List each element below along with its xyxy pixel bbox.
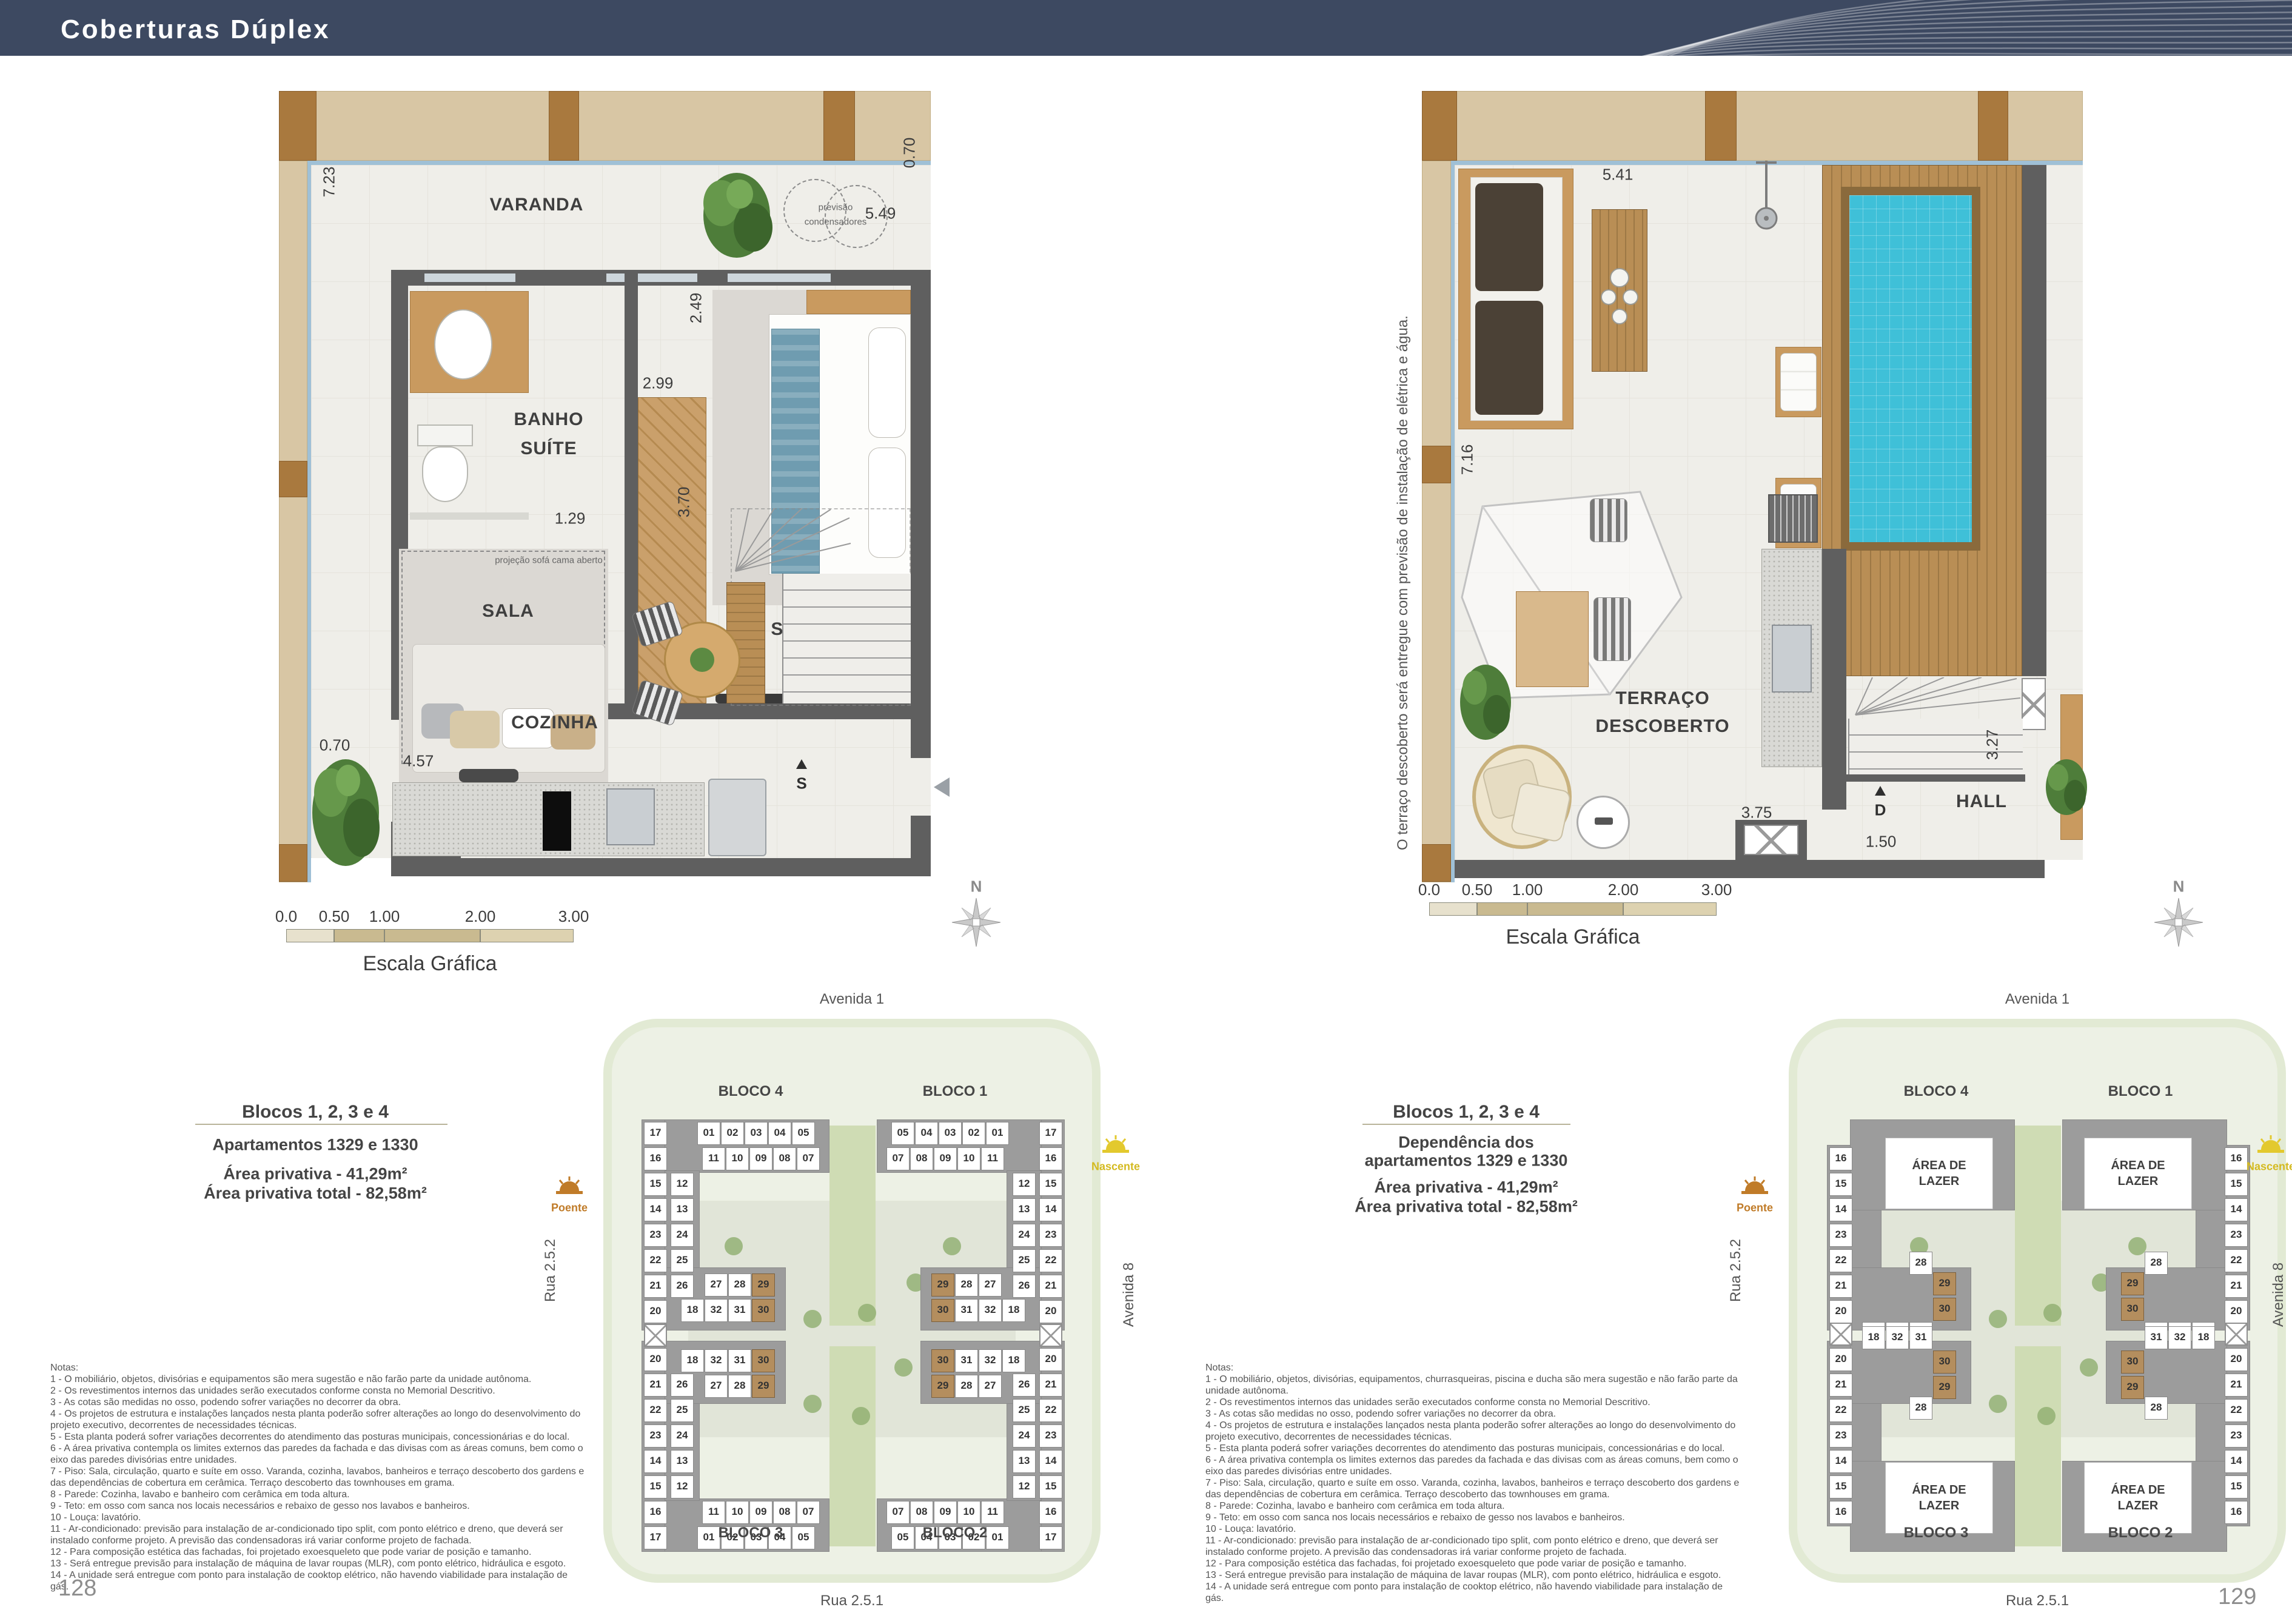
fridge <box>708 779 766 856</box>
scale-tick-label: 1.00 <box>369 907 400 926</box>
info-title: Blocos 1, 2, 3 e 4 <box>1393 1102 1540 1122</box>
unit-09: 09 <box>749 1501 772 1524</box>
unit-22: 22 <box>1039 1249 1062 1272</box>
range-hood <box>459 769 518 782</box>
unit-22: 22 <box>644 1249 667 1272</box>
unit-23: 23 <box>1039 1224 1062 1247</box>
sun-nascente-label: Nascente <box>2247 1161 2292 1173</box>
note-line: 2 - Os revestimentos internos das unidad… <box>1205 1397 1742 1408</box>
room-label-hall: HALL <box>1956 791 2007 812</box>
note-line: 11 - Ar-condicionado: previsão para inst… <box>50 1523 587 1546</box>
bloco1-label: BLOCO 1 <box>923 1083 988 1100</box>
towel <box>1780 353 1817 411</box>
lazer-line: LAZER <box>1886 1498 1992 1514</box>
unit-28: 28 <box>1909 1252 1932 1275</box>
unit-03: 03 <box>939 1122 962 1145</box>
unit-31: 31 <box>728 1349 751 1372</box>
note-line: 14 - A unidade será entregue com ponto p… <box>1205 1581 1742 1604</box>
chair <box>1590 498 1627 542</box>
unit-30: 30 <box>752 1349 775 1372</box>
unit-20: 20 <box>1829 1300 1852 1323</box>
plant-icon <box>2042 757 2091 817</box>
unit-21: 21 <box>2225 1275 2248 1298</box>
lazer-line: ÁREA DE <box>2085 1158 2191 1173</box>
grill <box>1768 494 1818 543</box>
toilet-tank <box>417 424 473 446</box>
unit-09: 09 <box>934 1147 957 1170</box>
bath-sink <box>434 309 492 380</box>
frame-post <box>1978 91 2008 161</box>
unit-21: 21 <box>1829 1275 1852 1298</box>
scale-tick-label: 2.00 <box>465 907 496 926</box>
unit-30: 30 <box>1933 1351 1956 1374</box>
unit-32: 32 <box>979 1349 1002 1372</box>
unit-04: 04 <box>768 1122 791 1145</box>
unit-28: 28 <box>2145 1397 2168 1420</box>
lazer-line: ÁREA DE <box>1886 1482 1992 1498</box>
condenser-label: previsão <box>819 203 853 213</box>
unit-05: 05 <box>792 1122 815 1145</box>
pillow-beige <box>450 711 500 748</box>
unit-15: 15 <box>2225 1173 2248 1196</box>
unit-08: 08 <box>773 1147 796 1170</box>
wall <box>391 858 931 876</box>
area-de-lazer-label: ÁREA DELAZER <box>2084 1138 2192 1209</box>
unit-27: 27 <box>979 1375 1002 1398</box>
scale-title: Escala Gráfica <box>1506 925 1640 949</box>
exoskeleton-left <box>279 161 307 882</box>
room-label-cozinha: COZINHA <box>511 713 598 733</box>
unit-01: 01 <box>986 1526 1009 1549</box>
dim-0-70b: 0.70 <box>320 736 350 755</box>
unit-07: 07 <box>797 1147 820 1170</box>
dim-3-75: 3.75 <box>1741 804 1772 822</box>
street-rua251: Rua 2.5.1 <box>2006 1592 2069 1609</box>
unit-32: 32 <box>1886 1326 1909 1349</box>
shaft-box <box>2022 678 2046 730</box>
unit-24: 24 <box>1013 1424 1036 1448</box>
unit-31: 31 <box>955 1299 978 1322</box>
unit-27: 27 <box>979 1273 1002 1297</box>
frame-post <box>279 91 317 161</box>
unit-29: 29 <box>2121 1272 2144 1295</box>
unit-08: 08 <box>910 1501 933 1524</box>
unit-17: 17 <box>644 1122 667 1145</box>
unit-31: 31 <box>2145 1326 2168 1349</box>
cushion <box>1510 781 1572 843</box>
building-quadrant: 1716151423222120121324252601020304051110… <box>644 1122 857 1328</box>
unit-26: 26 <box>671 1374 694 1397</box>
wall <box>1455 860 2045 878</box>
unit-14: 14 <box>1039 1198 1062 1221</box>
toilet-icon <box>422 446 468 502</box>
lazer-line: LAZER <box>2085 1173 2191 1189</box>
note-line: 5 - Esta planta poderá sofrer variações … <box>1205 1443 1742 1454</box>
info-divider <box>195 1124 447 1125</box>
note-line: 3 - As cotas são medidas no osso, podend… <box>1205 1408 1742 1420</box>
unit-08: 08 <box>773 1501 796 1524</box>
condenser-label: condensadores <box>805 217 867 227</box>
dim-5-49: 5.49 <box>865 204 896 223</box>
terrace-side-note: O terraço descoberto será entregue com p… <box>1395 315 1412 850</box>
unit-11: 11 <box>702 1501 725 1524</box>
building-quadrant: 16151423222120ÁREA DELAZER282930183231 <box>1829 1122 2043 1328</box>
notes-title: Notas: <box>1205 1362 1742 1374</box>
shelf <box>806 290 911 314</box>
unit-18: 18 <box>1002 1299 1025 1322</box>
unit-01: 01 <box>697 1122 720 1145</box>
unit-20: 20 <box>1039 1348 1062 1371</box>
stair-fan-icon <box>1848 677 2023 719</box>
unit-09: 09 <box>934 1501 957 1524</box>
info-area2: Área privativa total - 82,58m² <box>1355 1198 1578 1216</box>
unit-18: 18 <box>1862 1326 1885 1349</box>
unit-14: 14 <box>1829 1198 1852 1221</box>
note-line: 7 - Piso: Sala, circulação, quarto e suí… <box>50 1466 587 1489</box>
unit-05: 05 <box>792 1526 815 1549</box>
compass-icon <box>2153 896 2205 948</box>
unit-11: 11 <box>702 1147 725 1170</box>
unit-29: 29 <box>931 1375 954 1398</box>
frame-post <box>1705 91 1737 161</box>
unit-04: 04 <box>915 1122 938 1145</box>
unit-02: 02 <box>721 1122 744 1145</box>
brochure-page: Coberturas Dúplex VARANDA <box>0 0 2292 1624</box>
unit-21: 21 <box>2225 1374 2248 1397</box>
bath-divider <box>410 512 529 520</box>
unit-23: 23 <box>1039 1424 1062 1448</box>
frame-post <box>279 461 307 497</box>
notes-right: Notas: 1 - O mobiliário, objetos, divisó… <box>1205 1362 1742 1604</box>
shower-icon <box>1751 158 1781 233</box>
unit-15: 15 <box>1829 1475 1852 1498</box>
unit-01: 01 <box>986 1122 1009 1145</box>
unit-29: 29 <box>1933 1376 1956 1399</box>
sun-nascente-icon <box>1101 1134 1130 1155</box>
lazer-line: LAZER <box>1886 1173 1992 1189</box>
building-quadrant: 16151423222120ÁREA DELAZER282930183231 <box>2034 1122 2248 1328</box>
unit-23: 23 <box>644 1224 667 1247</box>
unit-12: 12 <box>1013 1475 1036 1498</box>
unit-26: 26 <box>1013 1275 1036 1298</box>
window <box>424 273 515 282</box>
unit-22: 22 <box>644 1399 667 1422</box>
unit-13: 13 <box>671 1198 694 1221</box>
unit-11: 11 <box>981 1501 1004 1524</box>
page-number-128: 128 <box>58 1575 96 1602</box>
unit-22: 22 <box>2225 1249 2248 1272</box>
note-line: 1 - O mobiliário, objetos, divisórias, e… <box>1205 1374 1742 1397</box>
scale-segment <box>334 929 384 942</box>
unit-08: 08 <box>910 1147 933 1170</box>
unit-14: 14 <box>1039 1450 1062 1473</box>
scale-tick-label: 1.00 <box>1512 881 1543 899</box>
unit-29: 29 <box>752 1273 775 1297</box>
unit-16: 16 <box>2225 1147 2248 1170</box>
bloco3-label: BLOCO 3 <box>1904 1525 1969 1542</box>
sun-nascente-icon <box>2256 1134 2285 1155</box>
dim-3-27: 3.27 <box>1983 730 2002 760</box>
frame-post <box>1422 844 1451 882</box>
scale-tick-label: 3.00 <box>558 907 589 926</box>
unit-30: 30 <box>752 1299 775 1322</box>
chair <box>1593 597 1631 661</box>
unit-30: 30 <box>931 1299 954 1322</box>
area-de-lazer-label: ÁREA DELAZER <box>1885 1138 1993 1209</box>
room-label-varanda: VARANDA <box>490 195 584 215</box>
unit-05: 05 <box>891 1526 914 1549</box>
dim-1-50: 1.50 <box>1866 833 1897 851</box>
scale-segment <box>384 929 480 942</box>
unit-07: 07 <box>797 1501 820 1524</box>
unit-30: 30 <box>2121 1298 2144 1321</box>
stair-fan-icon <box>731 508 852 574</box>
exoskeleton-left <box>1422 161 1451 882</box>
scale-segment <box>1527 902 1623 916</box>
unit-10: 10 <box>957 1501 980 1524</box>
unit-25: 25 <box>671 1249 694 1272</box>
note-line: 8 - Parede: Cozinha, lavabo e banheiro c… <box>1205 1500 1742 1512</box>
unit-16: 16 <box>644 1501 667 1524</box>
unit-12: 12 <box>671 1173 694 1196</box>
scale-tick-label: 0.0 <box>1418 881 1440 899</box>
unit-31: 31 <box>955 1349 978 1372</box>
unit-18: 18 <box>681 1349 704 1372</box>
compass-icon <box>950 896 1002 948</box>
dim-7-16: 7.16 <box>1458 445 1477 475</box>
unit-10: 10 <box>957 1147 980 1170</box>
scale-segment <box>480 929 574 942</box>
dim-2-49: 2.49 <box>687 293 706 324</box>
unit-13: 13 <box>671 1450 694 1473</box>
stair-treads <box>782 574 911 703</box>
unit-32: 32 <box>979 1299 1002 1322</box>
lazer-line: ÁREA DE <box>2085 1482 2191 1498</box>
bloco4-label: BLOCO 4 <box>1904 1083 1969 1100</box>
dim-3-70: 3.70 <box>675 487 694 518</box>
unit-17: 17 <box>1039 1122 1062 1145</box>
unit-15: 15 <box>644 1475 667 1498</box>
scale-tick-label: 3.00 <box>1701 881 1732 899</box>
unit-32: 32 <box>2168 1326 2191 1349</box>
unit-17: 17 <box>644 1526 667 1549</box>
scale-title: Escala Gráfica <box>363 952 497 976</box>
street-avenida8: Avenida 8 <box>2270 1263 2287 1327</box>
scale-tick-label: 2.00 <box>1608 881 1639 899</box>
stair-tower-icon <box>1039 1324 1062 1347</box>
unit-22: 22 <box>1829 1399 1852 1422</box>
plant-icon <box>697 167 779 267</box>
stair-tower-icon <box>2225 1323 2248 1346</box>
note-line: 1 - O mobiliário, objetos, divisórias e … <box>50 1374 587 1385</box>
frame-post <box>1422 91 1457 161</box>
unit-03: 03 <box>745 1122 768 1145</box>
plant-icon <box>308 755 387 870</box>
unit-32: 32 <box>705 1299 728 1322</box>
scale-segment <box>1477 902 1527 916</box>
dim-1-29: 1.29 <box>555 509 586 528</box>
unit-20: 20 <box>2225 1300 2248 1323</box>
room-label-banho2: SUÍTE <box>520 438 577 459</box>
room-label-banho: BANHO <box>514 409 584 430</box>
header-wave-decoration-icon <box>0 0 2292 56</box>
pillow <box>868 327 906 438</box>
unit-18: 18 <box>1002 1349 1025 1372</box>
dim-5-41: 5.41 <box>1603 166 1634 184</box>
plates-icon <box>1592 261 1647 334</box>
unit-16: 16 <box>2225 1501 2248 1524</box>
dim-0-70: 0.70 <box>900 138 919 169</box>
unit-23: 23 <box>1829 1424 1852 1448</box>
unit-31: 31 <box>1909 1326 1932 1349</box>
unit-01: 01 <box>697 1526 720 1549</box>
scale-segment <box>1429 902 1477 916</box>
sun-poente-label: Poente <box>1737 1202 1773 1215</box>
unit-10: 10 <box>726 1501 749 1524</box>
unit-24: 24 <box>671 1224 694 1247</box>
unit-18: 18 <box>681 1299 704 1322</box>
unit-07: 07 <box>886 1501 910 1524</box>
side-table-item <box>1595 817 1613 825</box>
unit-10: 10 <box>726 1147 749 1170</box>
note-line: 5 - Esta planta poderá sofrer variações … <box>50 1431 587 1443</box>
table-plant-icon <box>690 648 714 672</box>
info-area2: Área privativa total - 82,58m² <box>204 1184 427 1203</box>
sun-poente-label: Poente <box>551 1202 588 1215</box>
unit-20: 20 <box>1039 1300 1062 1323</box>
unit-21: 21 <box>1039 1374 1062 1397</box>
unit-25: 25 <box>1013 1399 1036 1422</box>
unit-21: 21 <box>1039 1275 1062 1298</box>
unit-21: 21 <box>1829 1374 1852 1397</box>
unit-28: 28 <box>728 1375 751 1398</box>
unit-32: 32 <box>705 1349 728 1372</box>
unit-30: 30 <box>2121 1351 2144 1374</box>
glass-railing <box>307 161 931 165</box>
unit-25: 25 <box>1013 1249 1036 1272</box>
notes-title: Notas: <box>50 1362 587 1374</box>
unit-15: 15 <box>644 1173 667 1196</box>
unit-20: 20 <box>2225 1348 2248 1371</box>
entry-arrow-icon <box>934 777 950 797</box>
unit-26: 26 <box>671 1275 694 1298</box>
info-area1: Área privativa - 41,29m² <box>223 1165 407 1184</box>
unit-29: 29 <box>1933 1272 1956 1295</box>
frame-post <box>279 844 307 882</box>
bloco4-label: BLOCO 4 <box>719 1083 783 1100</box>
wall <box>1846 774 2025 782</box>
unit-09: 09 <box>749 1147 772 1170</box>
page-title: Coberturas Dúplex <box>61 15 330 45</box>
stair-tower-icon <box>1829 1323 1852 1346</box>
window <box>606 273 697 282</box>
stair-letter: S <box>796 774 806 793</box>
info-divider <box>1362 1124 1570 1125</box>
unit-23: 23 <box>2225 1224 2248 1247</box>
street-rua252: Rua 2.5.2 <box>542 1239 559 1302</box>
unit-15: 15 <box>2225 1475 2248 1498</box>
note-line: 10 - Louça: lavatório. <box>50 1512 587 1523</box>
unit-28: 28 <box>728 1273 751 1297</box>
scale-tick-label: 0.0 <box>275 907 297 926</box>
frame-post <box>549 91 579 161</box>
street-avenida8: Avenida 8 <box>1121 1263 1138 1327</box>
unit-24: 24 <box>1013 1224 1036 1247</box>
room-label-terraco2: DESCOBERTO <box>1595 716 1729 737</box>
info-subtitle2: apartamentos 1329 e 1330 <box>1365 1152 1568 1170</box>
sofa-cushion <box>1475 301 1543 415</box>
note-line: 9 - Teto: em osso com sanca nos locais n… <box>1205 1512 1742 1523</box>
cooktop <box>543 791 571 851</box>
lazer-line: ÁREA DE <box>1886 1158 1992 1173</box>
unit-28: 28 <box>2145 1252 2168 1275</box>
unit-13: 13 <box>1013 1198 1036 1221</box>
street-avenida1: Avenida 1 <box>820 991 884 1008</box>
terrace-sink <box>1772 625 1812 693</box>
wall <box>1822 549 1846 810</box>
bloco3-label: BLOCO 3 <box>719 1525 783 1542</box>
dining-table-sketch <box>1516 591 1589 687</box>
unit-14: 14 <box>2225 1450 2248 1473</box>
unit-28: 28 <box>955 1273 978 1297</box>
unit-15: 15 <box>1039 1475 1062 1498</box>
unit-29: 29 <box>931 1273 954 1297</box>
balcony-door <box>728 273 831 282</box>
note-line: 13 - Será entregue previsão para instala… <box>1205 1569 1742 1581</box>
note-line: 4 - Os projetos de estrutura e instalaçõ… <box>1205 1420 1742 1443</box>
stair-letter: D <box>1875 801 1886 820</box>
note-line: 6 - A área privativa contempla os limite… <box>1205 1454 1742 1477</box>
building-quadrant: 1716151423222120121324252601020304051110… <box>849 1122 1062 1328</box>
unit-24: 24 <box>671 1424 694 1448</box>
scale-segment <box>286 929 334 942</box>
area-de-lazer-label: ÁREA DELAZER <box>2084 1462 2192 1534</box>
frame-post <box>1422 446 1451 483</box>
unit-25: 25 <box>671 1399 694 1422</box>
area-de-lazer-label: ÁREA DELAZER <box>1885 1462 1993 1534</box>
unit-16: 16 <box>1829 1501 1852 1524</box>
room-label-sala: SALA <box>482 601 534 622</box>
wall <box>625 270 638 719</box>
scale-tick-label: 0.50 <box>1462 881 1493 899</box>
note-line: 13 - Será entregue previsão para instala… <box>50 1558 587 1569</box>
projection-label: projeção sofá cama aberto <box>495 555 603 566</box>
stair-direction-icon <box>1875 786 1886 796</box>
unit-14: 14 <box>644 1450 667 1473</box>
note-line: 12 - Para composição estética das fachad… <box>1205 1558 1742 1569</box>
unit-16: 16 <box>1039 1501 1062 1524</box>
unit-21: 21 <box>644 1275 667 1298</box>
compass-north-label: N <box>971 877 982 896</box>
stair-direction-icon <box>796 759 807 769</box>
sun-poente-icon <box>1740 1175 1769 1196</box>
note-line: 12 - Para composição estética das fachad… <box>50 1546 587 1558</box>
sofa-cushion <box>1475 183 1543 291</box>
header-bar: Coberturas Dúplex <box>0 0 2292 56</box>
sun-nascente-label: Nascente <box>1091 1161 1140 1173</box>
note-line: 2 - Os revestimentos internos das unidad… <box>50 1385 587 1397</box>
dim-7-23: 7.23 <box>320 167 339 198</box>
unit-21: 21 <box>644 1374 667 1397</box>
sun-poente-icon <box>555 1175 584 1196</box>
info-title: Blocos 1, 2, 3 e 4 <box>242 1102 389 1122</box>
unit-31: 31 <box>728 1299 751 1322</box>
building-quadrant: 1716151423222120121324252601020304051110… <box>849 1343 1062 1549</box>
unit-15: 15 <box>1039 1173 1062 1196</box>
note-line: 8 - Parede: Cozinha, lavabo e banheiro c… <box>50 1489 587 1500</box>
note-line: 14 - A unidade será entregue com ponto p… <box>50 1569 587 1592</box>
building-quadrant: 16151423222120ÁREA DELAZER282930183231 <box>2034 1343 2248 1549</box>
